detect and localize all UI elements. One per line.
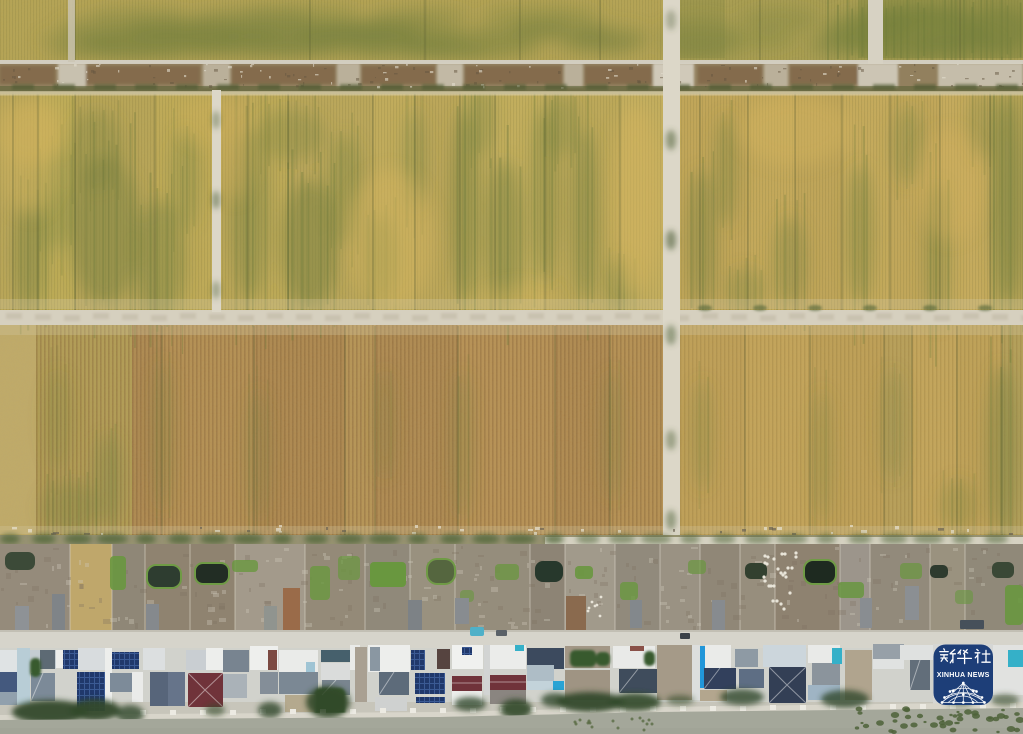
svg-text:XINHUA NEWS: XINHUA NEWS — [937, 671, 990, 679]
